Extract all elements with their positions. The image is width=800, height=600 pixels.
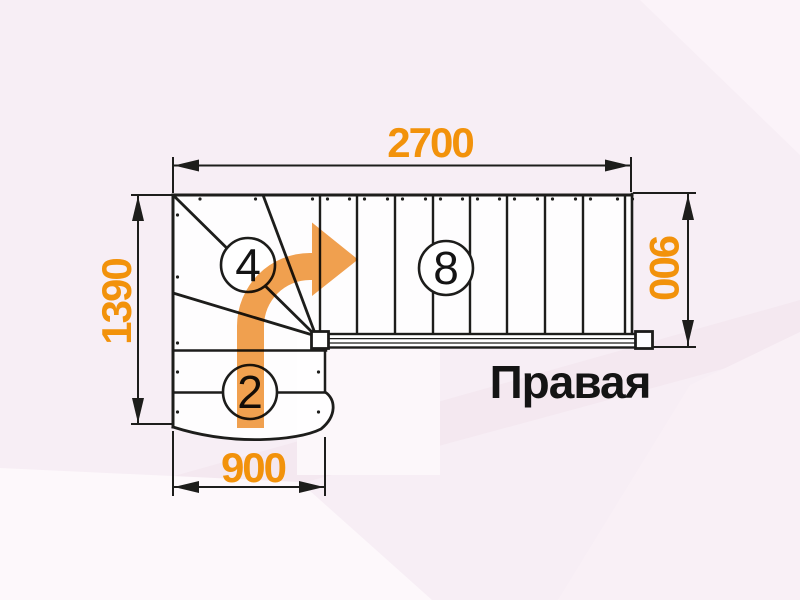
fastener-dot bbox=[176, 341, 179, 344]
newel-post-left bbox=[312, 332, 329, 349]
fastener-dot bbox=[616, 197, 619, 200]
dimension-arrow-left-icon bbox=[174, 160, 199, 172]
fastener-dot bbox=[254, 197, 257, 200]
fastener-dot bbox=[551, 197, 554, 200]
upper-flight-count: 8 bbox=[433, 242, 459, 294]
dimension-arrow-up-icon bbox=[132, 196, 144, 221]
fastener-dot bbox=[589, 197, 592, 200]
fastener-dot bbox=[176, 370, 179, 373]
fastener-dot bbox=[176, 275, 179, 278]
fastener-dot bbox=[311, 197, 314, 200]
fastener-dot bbox=[401, 197, 404, 200]
dimension-arrow-down-icon bbox=[132, 398, 144, 423]
background-facet bbox=[640, 0, 800, 155]
fastener-dot bbox=[348, 197, 351, 200]
fastener-dot bbox=[198, 197, 201, 200]
dimension-arrow-right-icon bbox=[299, 481, 324, 493]
handrail bbox=[312, 332, 653, 349]
dimension-top: 2700 bbox=[173, 119, 631, 193]
dimension-top-value: 2700 bbox=[387, 119, 473, 166]
fastener-dot bbox=[317, 370, 320, 373]
newel-post-right bbox=[636, 332, 653, 349]
dimension-right-value: 900 bbox=[641, 235, 688, 300]
fastener-dot bbox=[317, 410, 320, 413]
stair-type-label: Правая bbox=[490, 356, 651, 408]
fastener-dot bbox=[476, 197, 479, 200]
handrail-bar bbox=[328, 334, 638, 348]
fastener-dot bbox=[439, 197, 442, 200]
dimension-arrow-up-icon bbox=[682, 195, 694, 220]
dimension-left-value: 1390 bbox=[93, 259, 140, 345]
dimension-arrow-right-icon bbox=[605, 160, 630, 172]
fastener-dot bbox=[498, 197, 501, 200]
stair-plan-drawing: 4 8 2 2700 1390 900 900 bbox=[0, 0, 800, 600]
fastener-dot bbox=[176, 410, 179, 413]
dimension-left: 1390 bbox=[93, 195, 172, 424]
fastener-dot bbox=[176, 213, 179, 216]
fastener-dot bbox=[513, 197, 516, 200]
fastener-dot bbox=[461, 197, 464, 200]
fastener-dot bbox=[326, 197, 329, 200]
fastener-dot bbox=[536, 197, 539, 200]
fastener-dot bbox=[631, 197, 634, 200]
dimension-right: 900 bbox=[633, 193, 696, 347]
dimension-bottom-value: 900 bbox=[221, 444, 286, 491]
stair-plan-canvas: 4 8 2 2700 1390 900 900 bbox=[0, 0, 800, 600]
fastener-dot bbox=[424, 197, 427, 200]
fastener-dot bbox=[363, 197, 366, 200]
fastener-dot bbox=[574, 197, 577, 200]
fastener-dot bbox=[386, 197, 389, 200]
